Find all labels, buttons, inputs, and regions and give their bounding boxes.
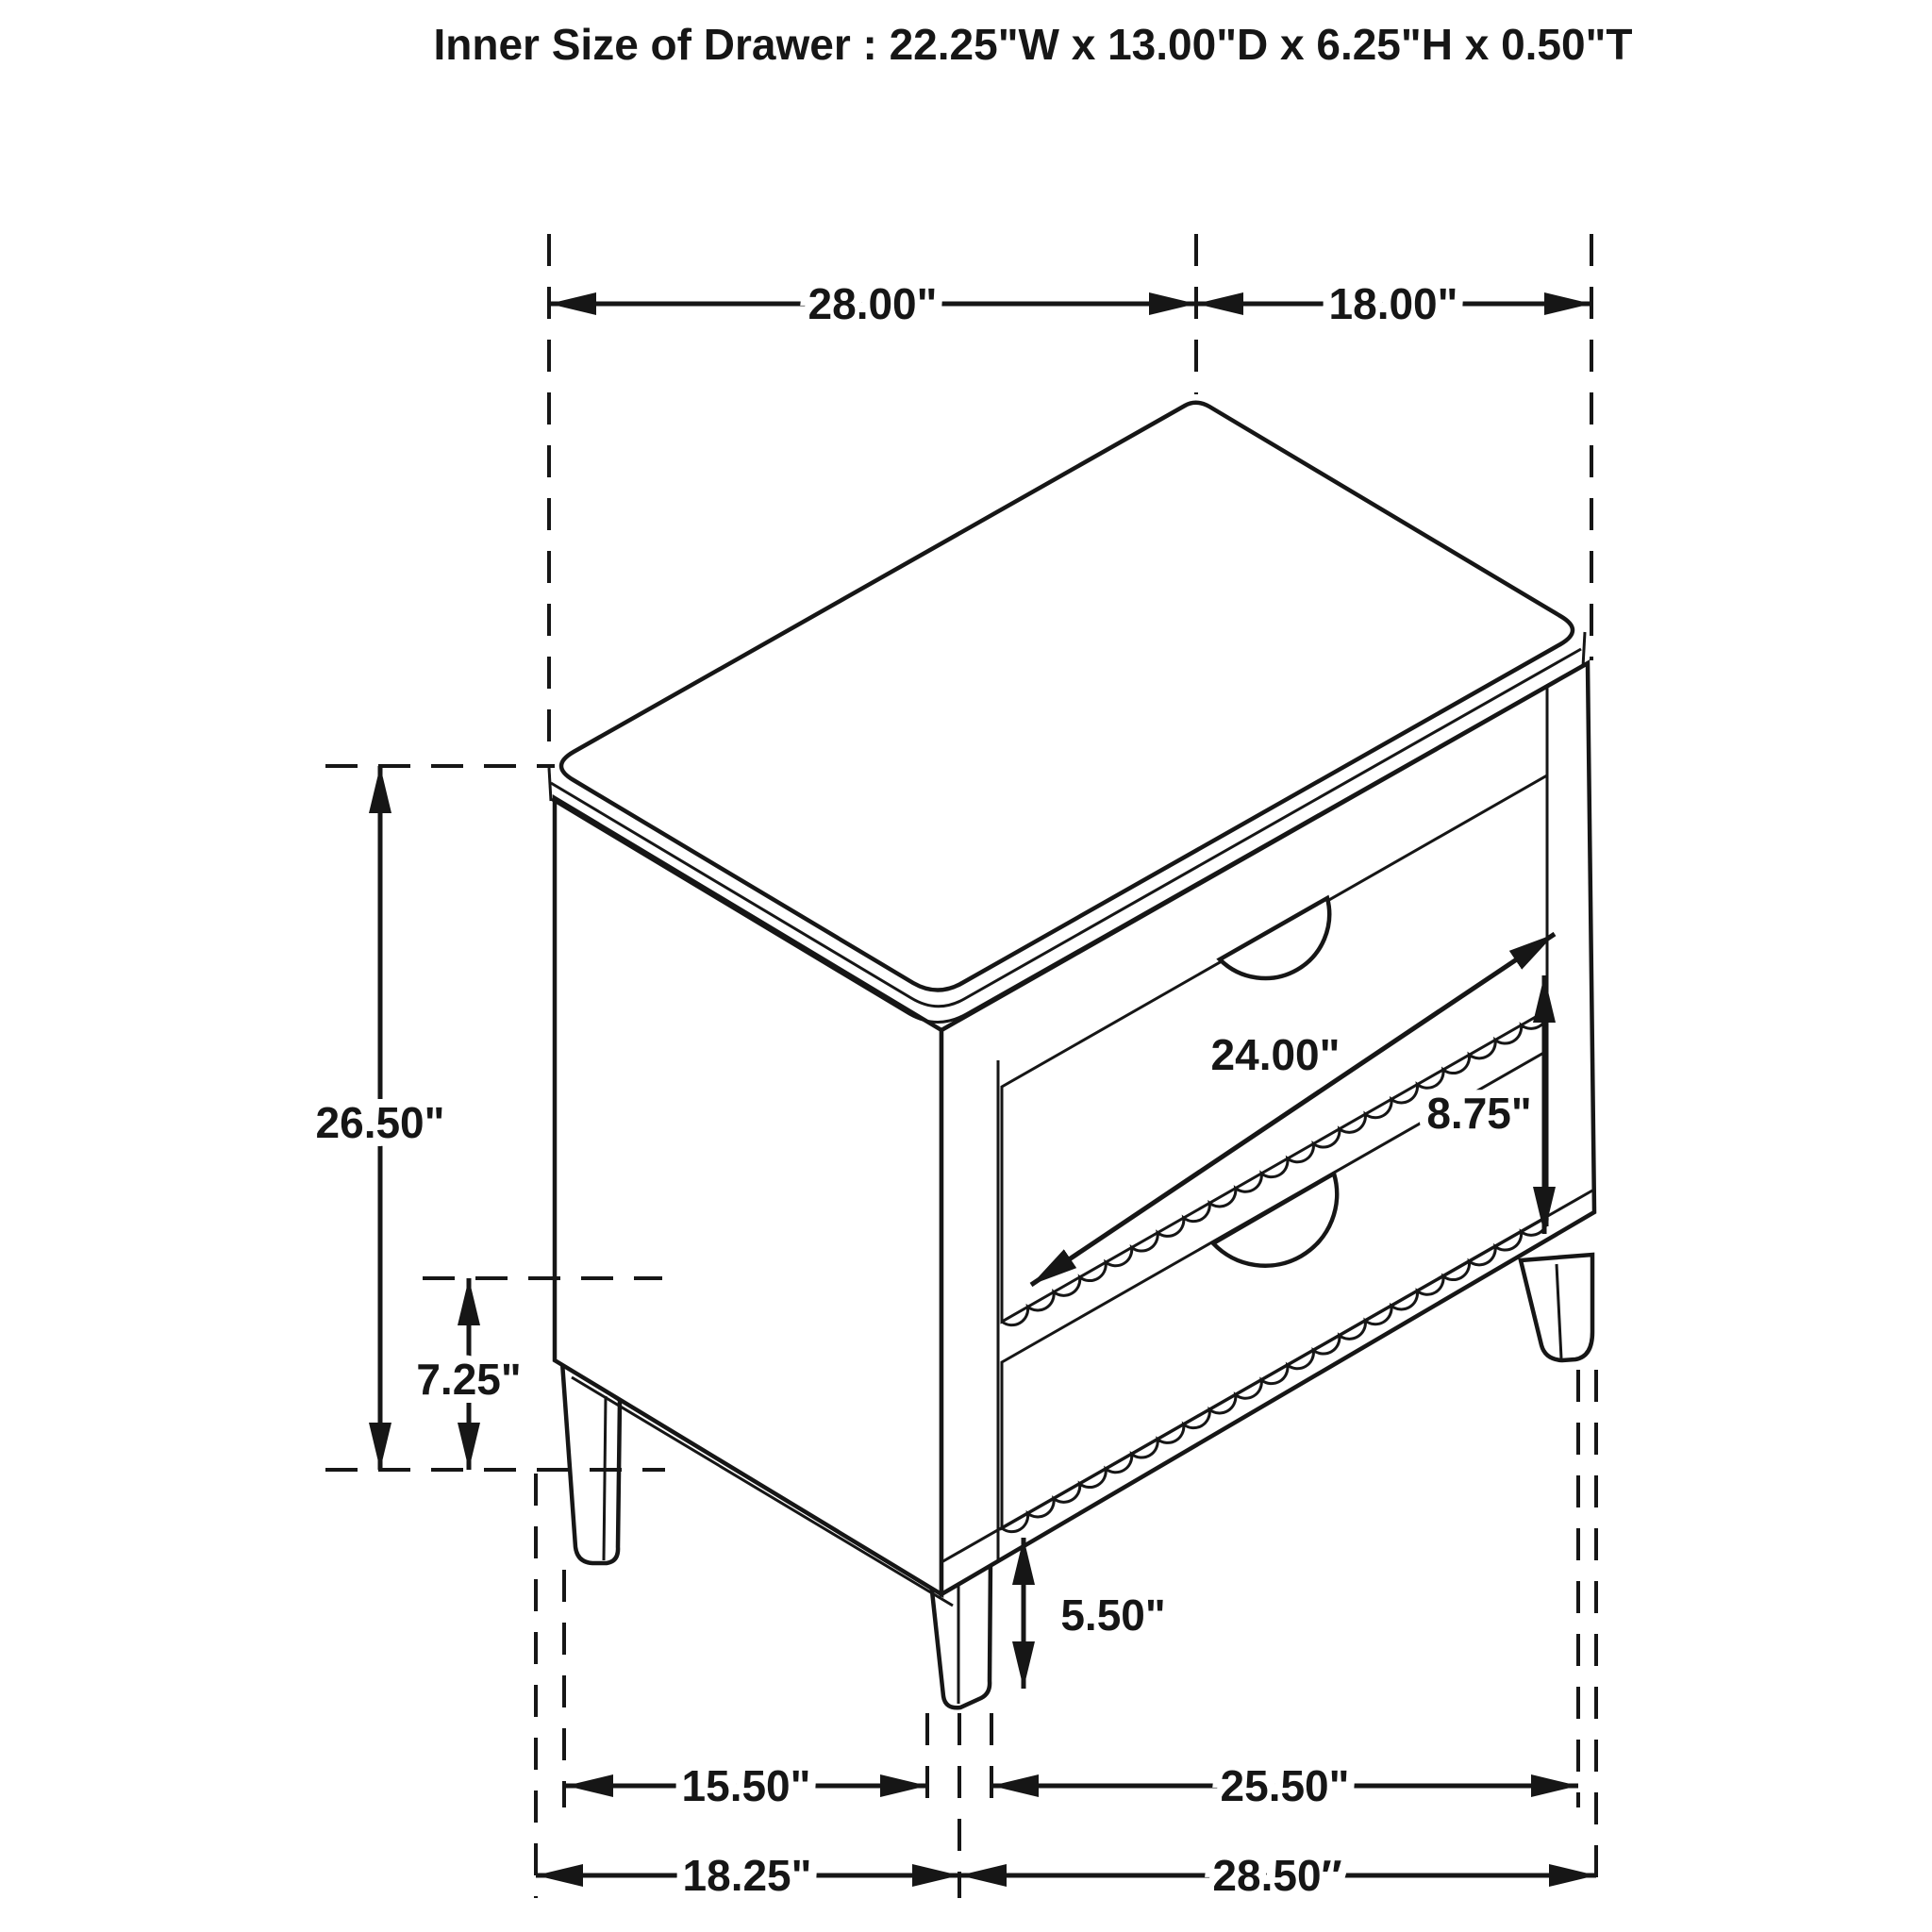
dim-label-underbody-clearance: 7.25"	[416, 1355, 521, 1404]
dim-label-top-width: 28.00"	[808, 279, 938, 328]
dim-label-front-leg-spacing: 15.50"	[682, 1761, 811, 1810]
right-leg	[1521, 1255, 1592, 1360]
dim-label-drawer-face-width: 24.00"	[1211, 1030, 1341, 1079]
dim-label-side-leg-spacing: 25.50"	[1221, 1761, 1350, 1810]
dim-label-top-depth: 18.00"	[1329, 279, 1458, 328]
nightstand-dimension-diagram: Inner Size of Drawer : 22.25"W x 13.00"D…	[0, 0, 1932, 1932]
dim-label-overall-height: 26.50"	[316, 1098, 445, 1147]
dim-label-drawer-face-height: 8.75"	[1426, 1089, 1531, 1138]
dim-label-leg-height: 5.50"	[1060, 1591, 1165, 1640]
dim-label-side-base-depth: 28.50″	[1212, 1851, 1341, 1900]
diagram-canvas: Inner Size of Drawer : 22.25"W x 13.00"D…	[0, 0, 1932, 1932]
dim-label-front-base-width: 18.25"	[683, 1851, 812, 1900]
page-title: Inner Size of Drawer : 22.25"W x 13.00"D…	[433, 20, 1632, 69]
